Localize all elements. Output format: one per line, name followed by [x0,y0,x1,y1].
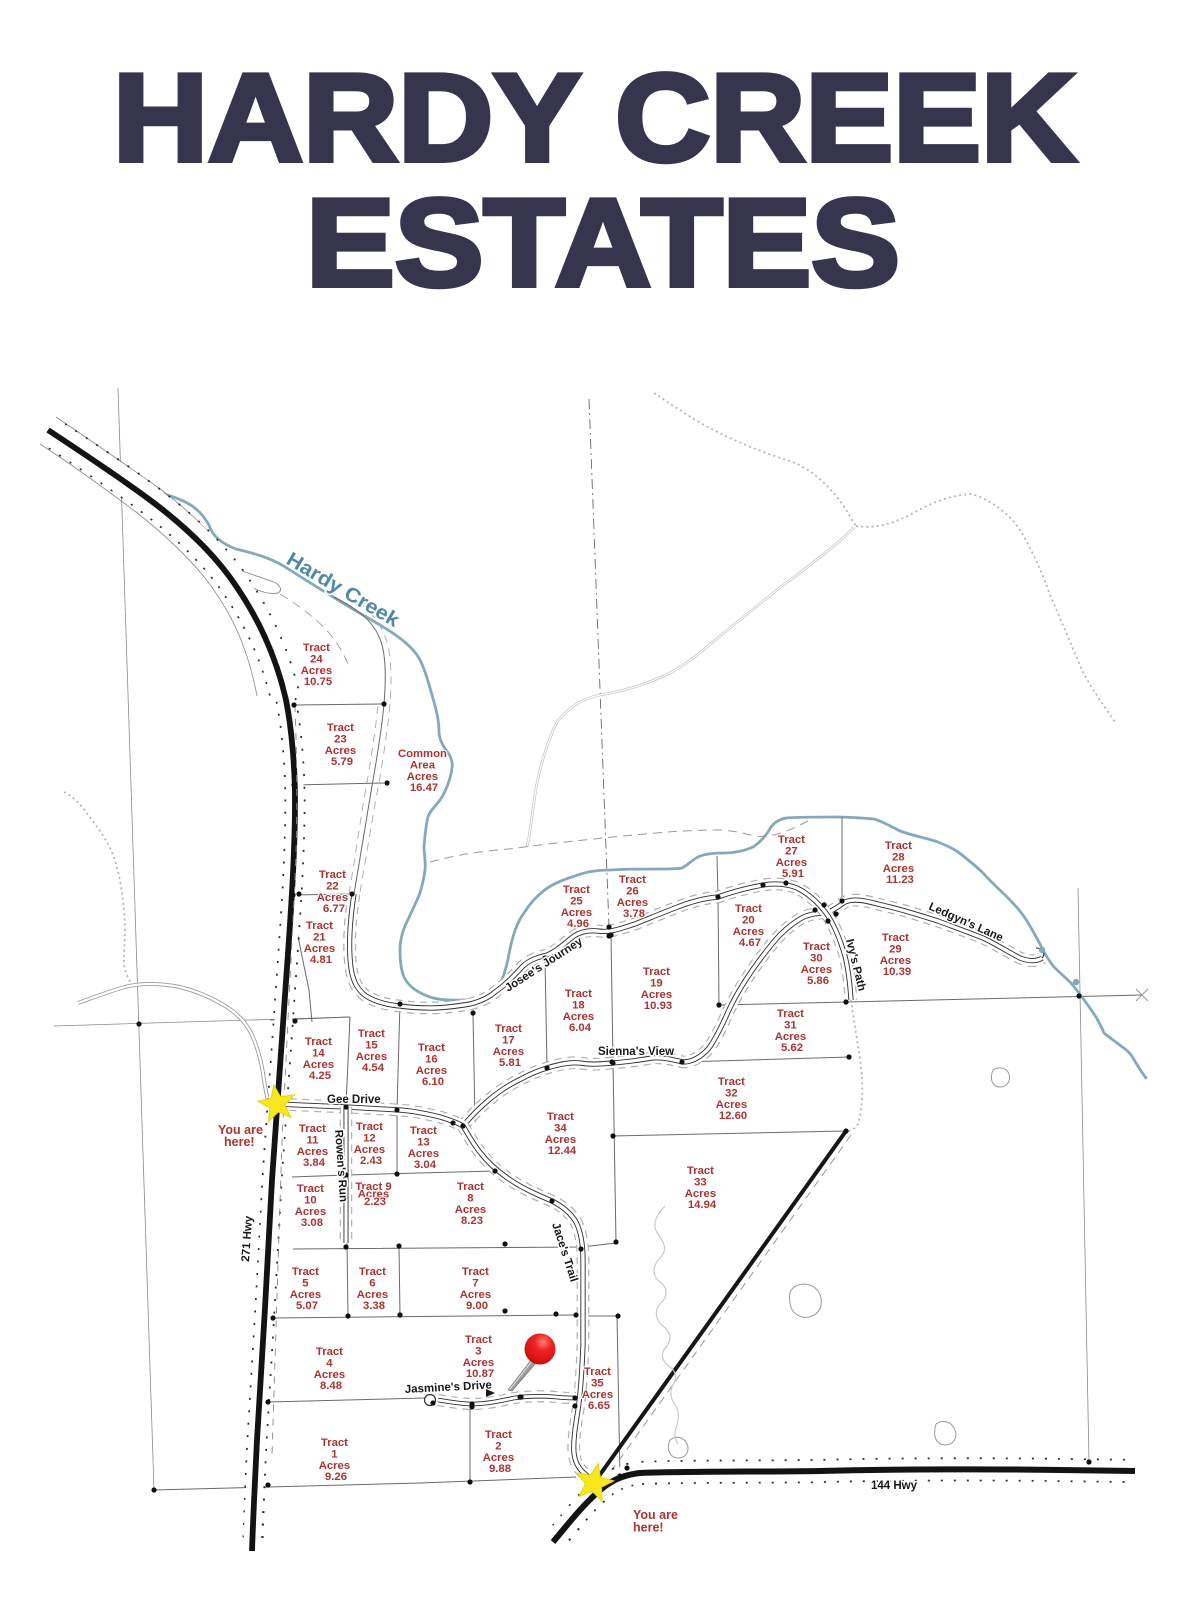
svg-text:Tract 19 Acres 10.93: Tract 19 Acres 10.93 [641,966,676,1012]
svg-text:144 Hwy: 144 Hwy [871,1480,918,1492]
svg-text:ESTATES: ESTATES [306,174,900,313]
svg-text:Tract 33 Acres 14.94: Tract 33 Acres 14.94 [685,1165,720,1211]
svg-text:Tract 28 Acres 11.23: Tract 28 Acres 11.23 [883,840,918,886]
svg-text:Sienna's View: Sienna's View [598,1046,674,1058]
svg-text:Tract 29 Acres 10.39: Tract 29 Acres 10.39 [880,932,915,978]
svg-text:Tract 24 Acres 10.75: Tract 24 Acres 10.75 [301,642,336,688]
svg-text:Tract 3 Acres 10.87: Tract 3 Acres 10.87 [463,1334,498,1380]
svg-text:Tract 34 Acres 12.44: Tract 34 Acres 12.44 [545,1111,580,1157]
svg-text:Tract 32 Acres 12.60: Tract 32 Acres 12.60 [716,1076,751,1122]
svg-text:Gee Drive: Gee Drive [327,1094,381,1106]
svg-text:HARDY CREEK: HARDY CREEK [113,49,1076,188]
